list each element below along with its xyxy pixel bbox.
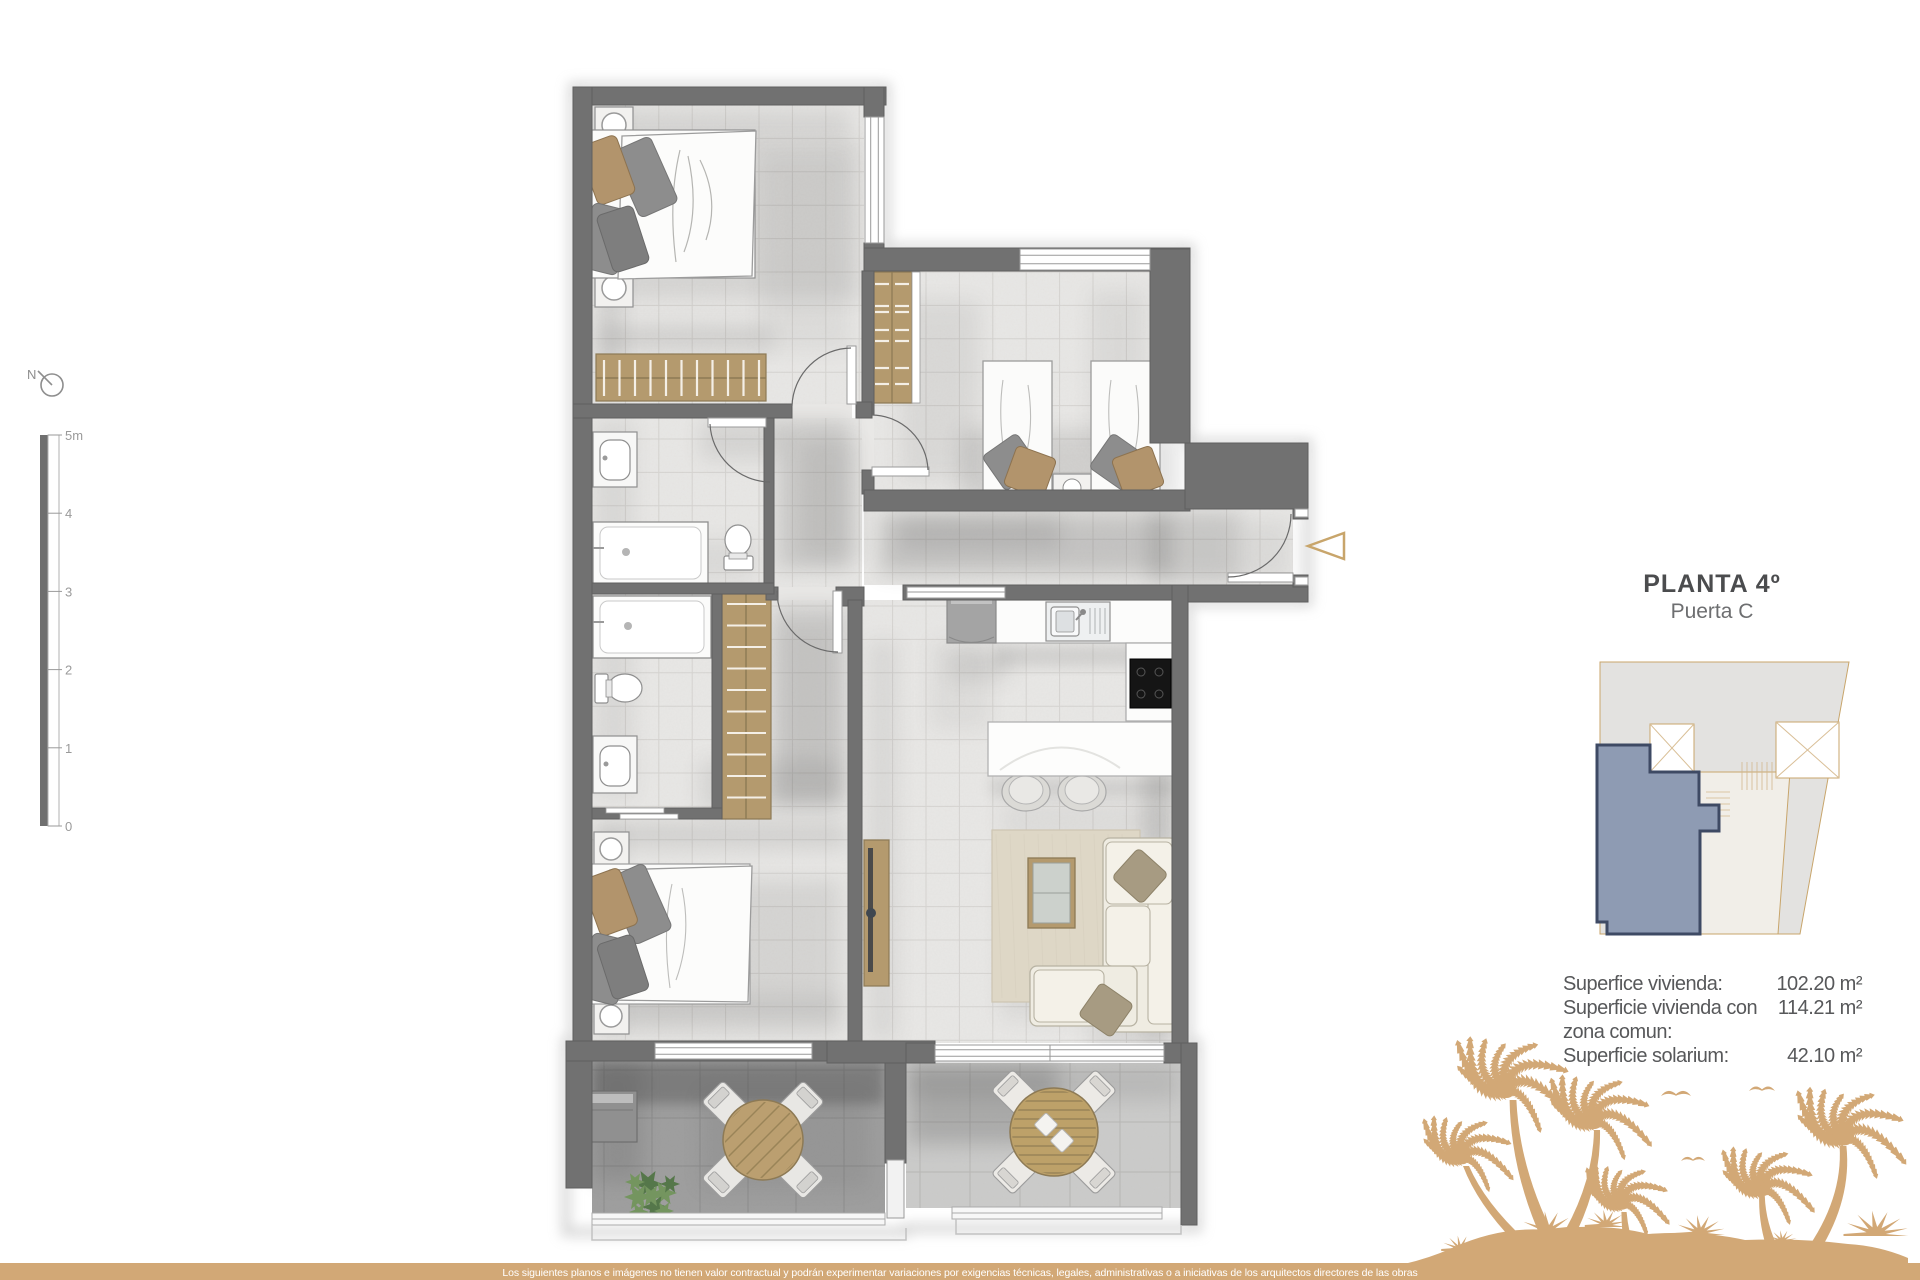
- svg-text:N: N: [27, 367, 36, 382]
- svg-text:5m: 5m: [65, 428, 83, 443]
- svg-text:2: 2: [65, 663, 72, 678]
- svg-text:114.21 m²: 114.21 m²: [1778, 997, 1863, 1019]
- svg-text:Los siguientes planos e imágen: Los siguientes planos e imágenes no tien…: [502, 1267, 1417, 1279]
- svg-text:1: 1: [65, 741, 72, 756]
- svg-text:3: 3: [65, 584, 72, 599]
- svg-text:Superficie solarium:: Superficie solarium:: [1563, 1045, 1729, 1067]
- svg-text:0: 0: [65, 819, 72, 834]
- svg-text:Puerta C: Puerta C: [1671, 600, 1754, 623]
- svg-text:zona comun:: zona comun:: [1563, 1021, 1672, 1043]
- svg-text:Superfice vivienda:: Superfice vivienda:: [1563, 973, 1722, 995]
- svg-text:PLANTA 4º: PLANTA 4º: [1643, 570, 1781, 598]
- svg-text:Superficie vivienda con: Superficie vivienda con: [1563, 997, 1757, 1019]
- svg-text:42.10 m²: 42.10 m²: [1787, 1045, 1863, 1067]
- svg-text:4: 4: [65, 506, 72, 521]
- svg-text:102.20 m²: 102.20 m²: [1776, 973, 1862, 995]
